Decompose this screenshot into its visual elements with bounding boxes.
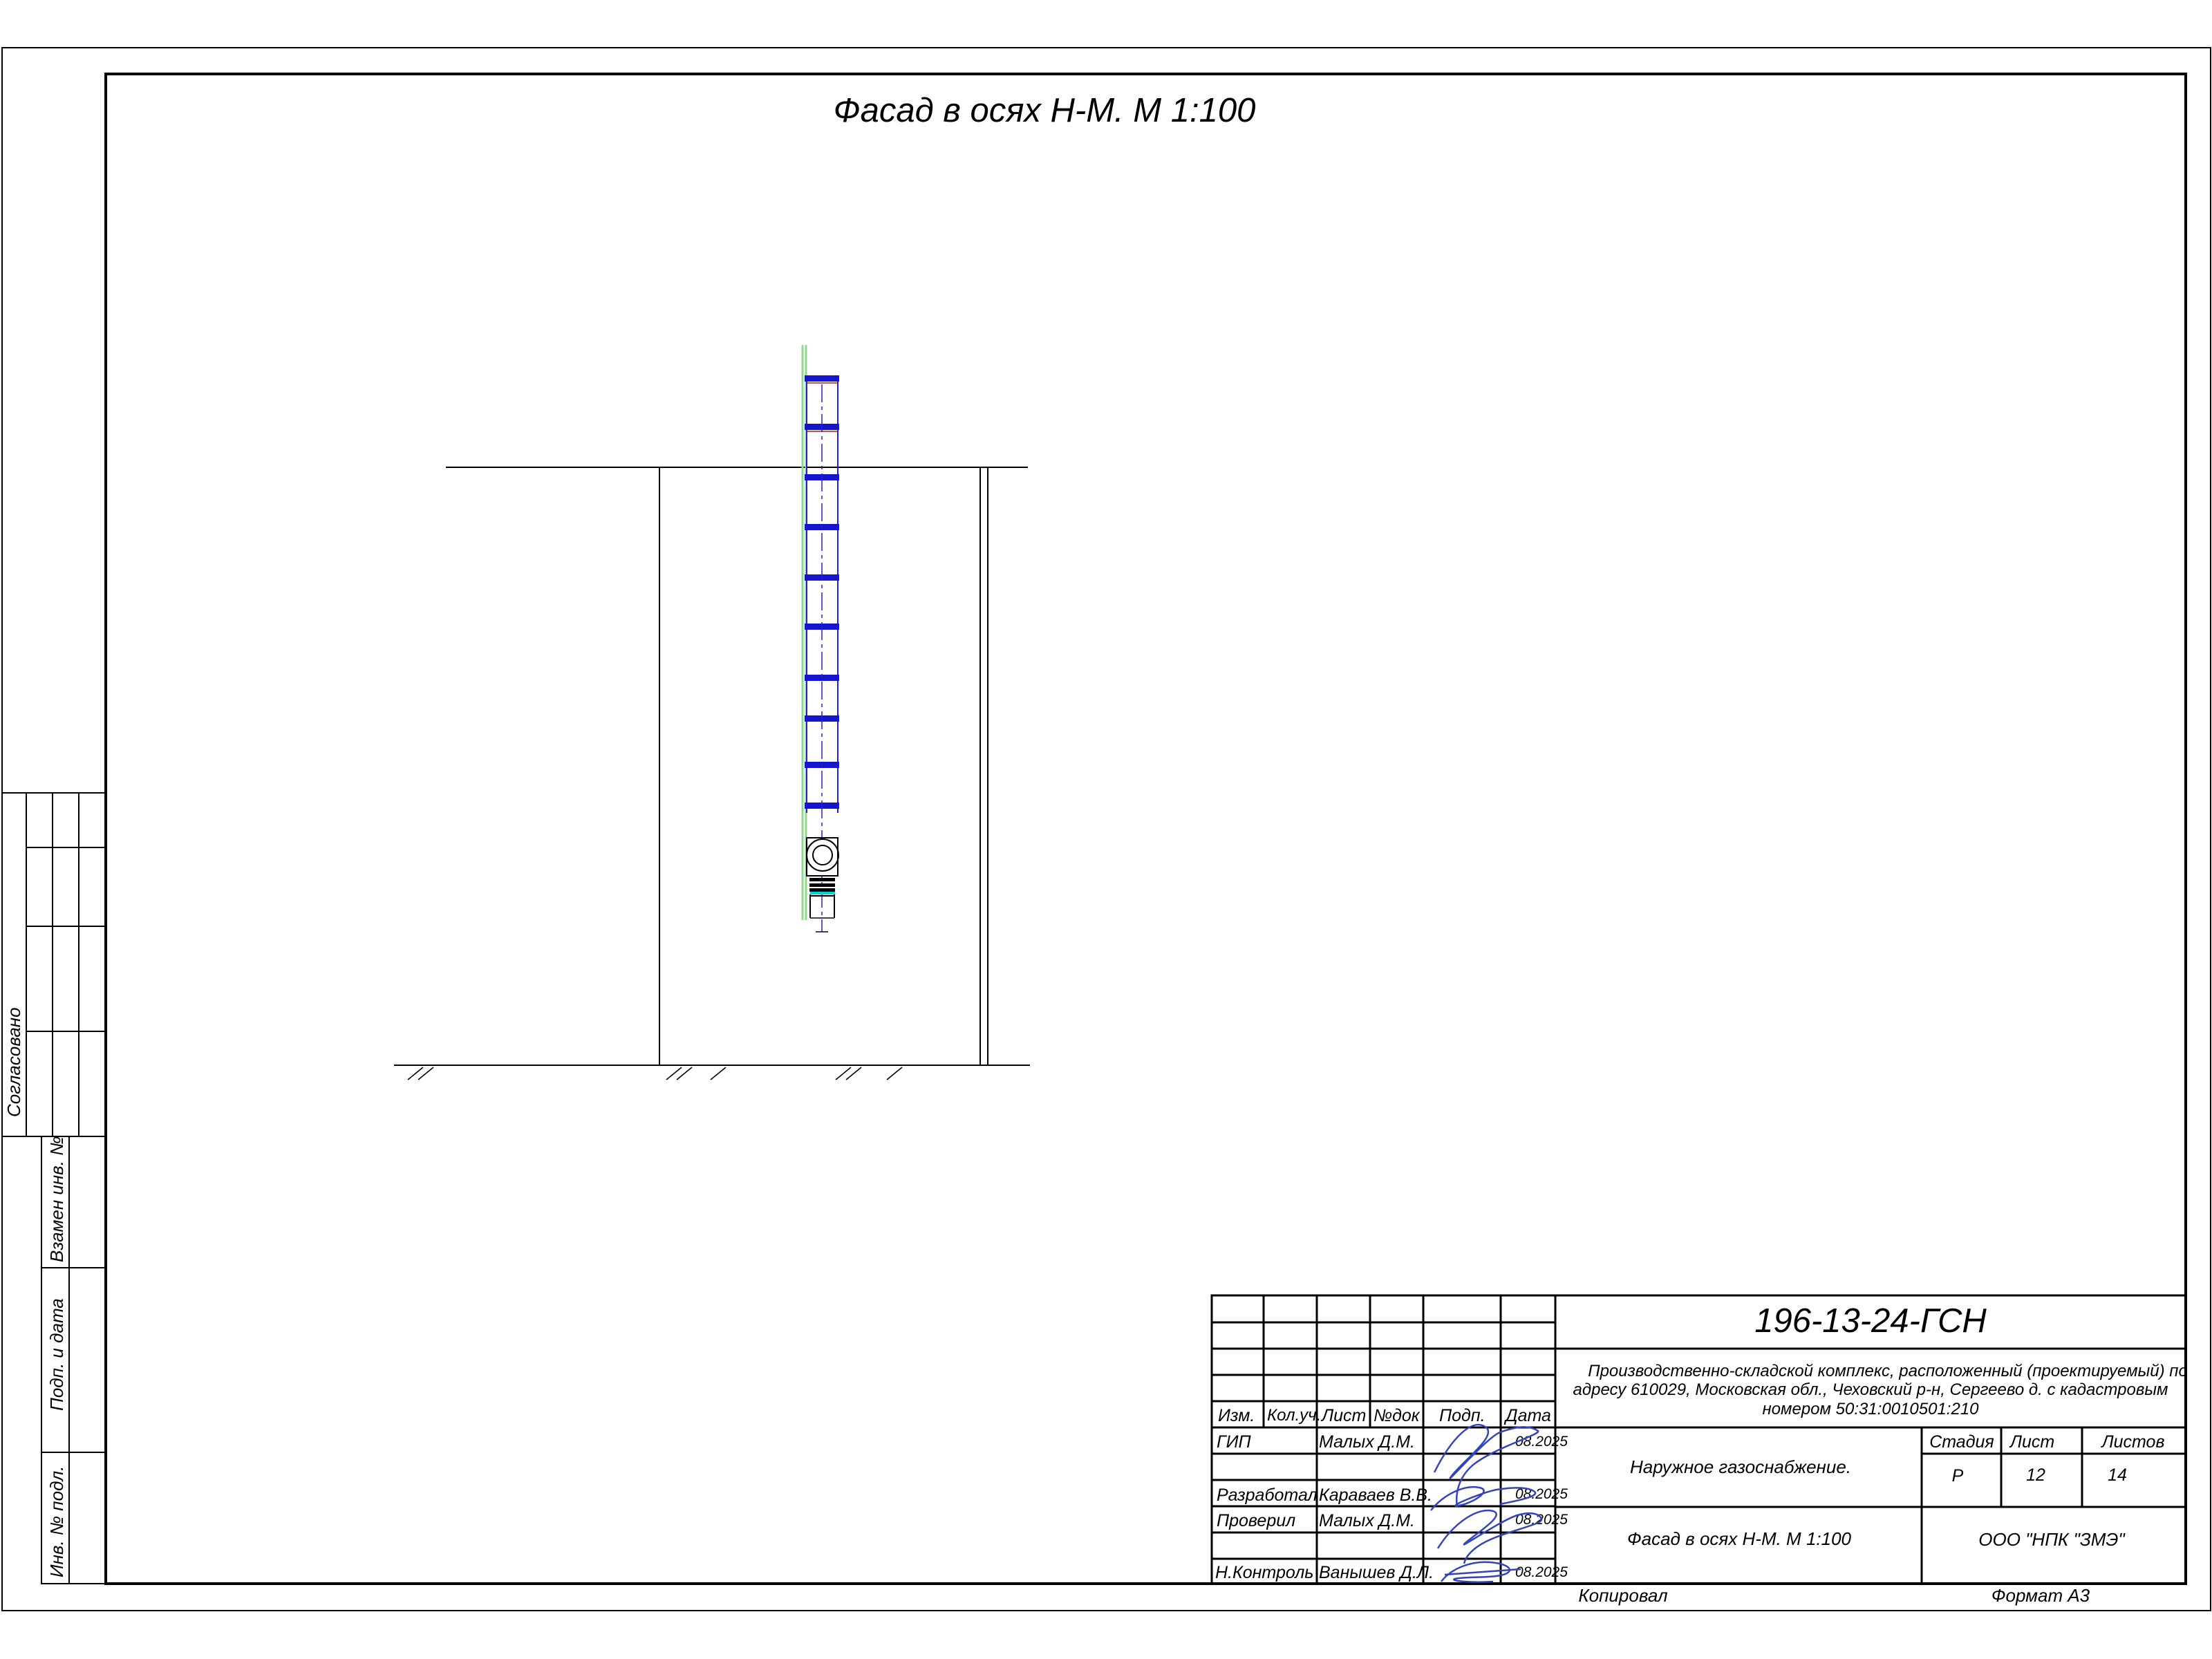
svg-text:Подп. и дата: Подп. и дата (46, 1298, 67, 1411)
svg-text:14: 14 (2108, 1465, 2127, 1485)
svg-text:Малых Д.М.: Малых Д.М. (1319, 1432, 1415, 1452)
svg-text:Взамен инв. №: Взамен инв. № (46, 1136, 67, 1262)
svg-text:Производственно-складской комп: Производственно-складской комплекс, расп… (1588, 1362, 2188, 1380)
svg-text:Ванышев Д.Л.: Ванышев Д.Л. (1319, 1563, 1434, 1582)
svg-text:12: 12 (2026, 1465, 2045, 1485)
svg-text:Фасад в осях Н-М. М 1:100: Фасад в осях Н-М. М 1:100 (1627, 1528, 1852, 1549)
svg-text:номером 50:31:0010501:210: номером 50:31:0010501:210 (1762, 1400, 1979, 1418)
svg-text:Проверил: Проверил (1217, 1511, 1295, 1530)
svg-text:адресу 610029, Московская обл.: адресу 610029, Московская обл., Чеховски… (1573, 1380, 2168, 1399)
svg-text:Лист: Лист (2009, 1432, 2054, 1452)
svg-text:08.2025: 08.2025 (1515, 1564, 1568, 1580)
svg-text:Кол.уч.: Кол.уч. (1267, 1406, 1321, 1425)
svg-text:Караваев В.В.: Караваев В.В. (1319, 1485, 1432, 1505)
svg-text:Разработал: Разработал (1217, 1485, 1318, 1505)
svg-text:Изм.: Изм. (1218, 1406, 1255, 1425)
svg-text:Наружное газоснабжение.: Наружное газоснабжение. (1630, 1456, 1851, 1477)
svg-text:Малых Д.М.: Малых Д.М. (1319, 1511, 1415, 1530)
svg-text:Копировал: Копировал (1578, 1585, 1668, 1606)
svg-text:Стадия: Стадия (1929, 1432, 1994, 1452)
svg-text:Инв. № подл.: Инв. № подл. (46, 1466, 67, 1577)
svg-text:Фасад в осях Н-М. М 1:100: Фасад в осях Н-М. М 1:100 (834, 92, 1256, 129)
svg-text:Дата: Дата (1503, 1406, 1551, 1425)
svg-text:ООО "НПК "ЗМЭ": ООО "НПК "ЗМЭ" (1978, 1529, 2126, 1550)
svg-text:Подп.: Подп. (1439, 1406, 1485, 1425)
svg-text:196-13-24-ГСН: 196-13-24-ГСН (1754, 1302, 1987, 1340)
svg-text:Лист: Лист (1320, 1406, 1366, 1425)
svg-text:08.2025: 08.2025 (1515, 1434, 1568, 1450)
svg-text:Формат А3: Формат А3 (1991, 1585, 2090, 1606)
svg-text:Согласовано: Согласовано (3, 1007, 24, 1117)
svg-text:Листов: Листов (2100, 1432, 2164, 1452)
svg-text:ГИП: ГИП (1217, 1432, 1251, 1452)
svg-text:Р: Р (1952, 1466, 1964, 1485)
svg-text:№док: №док (1374, 1406, 1421, 1425)
svg-text:Н.Контроль: Н.Контроль (1215, 1563, 1313, 1582)
